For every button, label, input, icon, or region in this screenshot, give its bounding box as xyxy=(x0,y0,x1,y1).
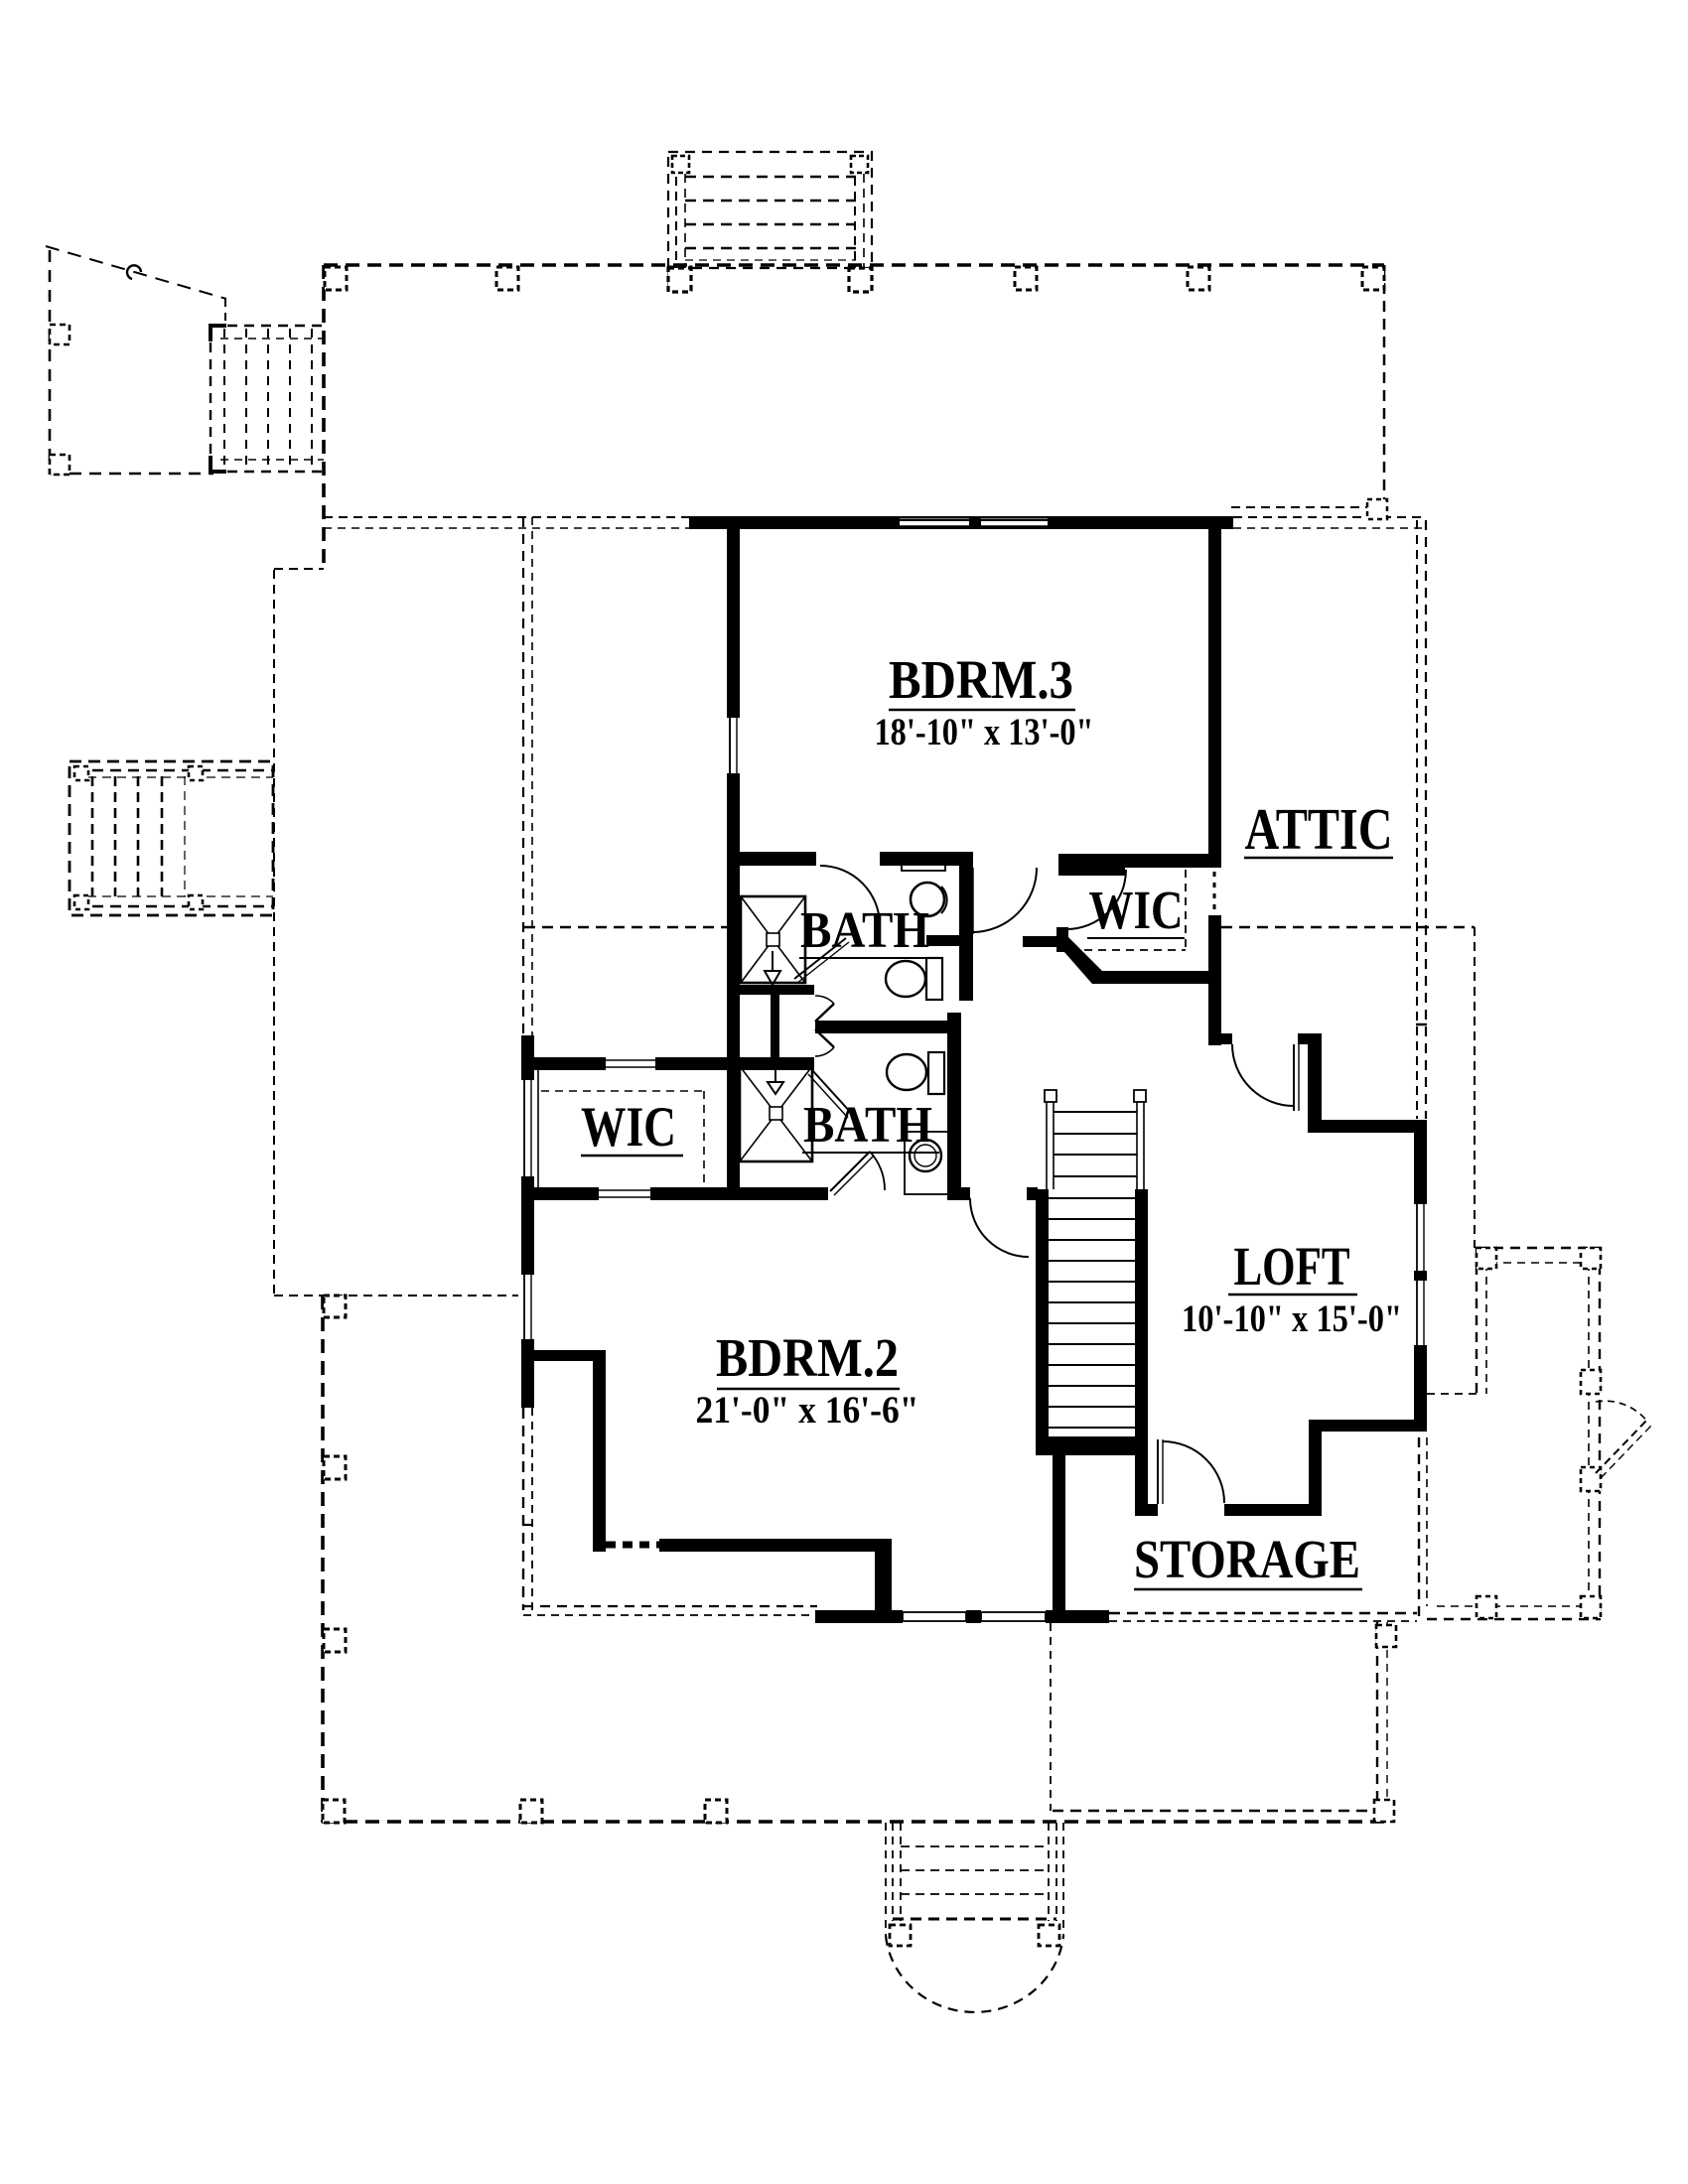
svg-text:10'-10" x 15'-0": 10'-10" x 15'-0" xyxy=(1182,1297,1402,1340)
svg-text:21'-0" x 16'-6": 21'-0" x 16'-6" xyxy=(696,1389,919,1432)
svg-text:BATH: BATH xyxy=(800,902,929,959)
svg-text:BATH: BATH xyxy=(803,1097,932,1154)
svg-text:STORAGE: STORAGE xyxy=(1134,1529,1360,1589)
svg-text:WIC: WIC xyxy=(581,1096,676,1159)
svg-text:18'-10" x 13'-0": 18'-10" x 13'-0" xyxy=(875,711,1094,753)
svg-text:BDRM.3: BDRM.3 xyxy=(889,649,1073,710)
svg-text:LOFT: LOFT xyxy=(1234,1236,1350,1297)
svg-text:WIC: WIC xyxy=(1089,880,1184,940)
svg-text:BDRM.2: BDRM.2 xyxy=(716,1327,899,1388)
svg-text:ATTIC: ATTIC xyxy=(1245,796,1393,862)
